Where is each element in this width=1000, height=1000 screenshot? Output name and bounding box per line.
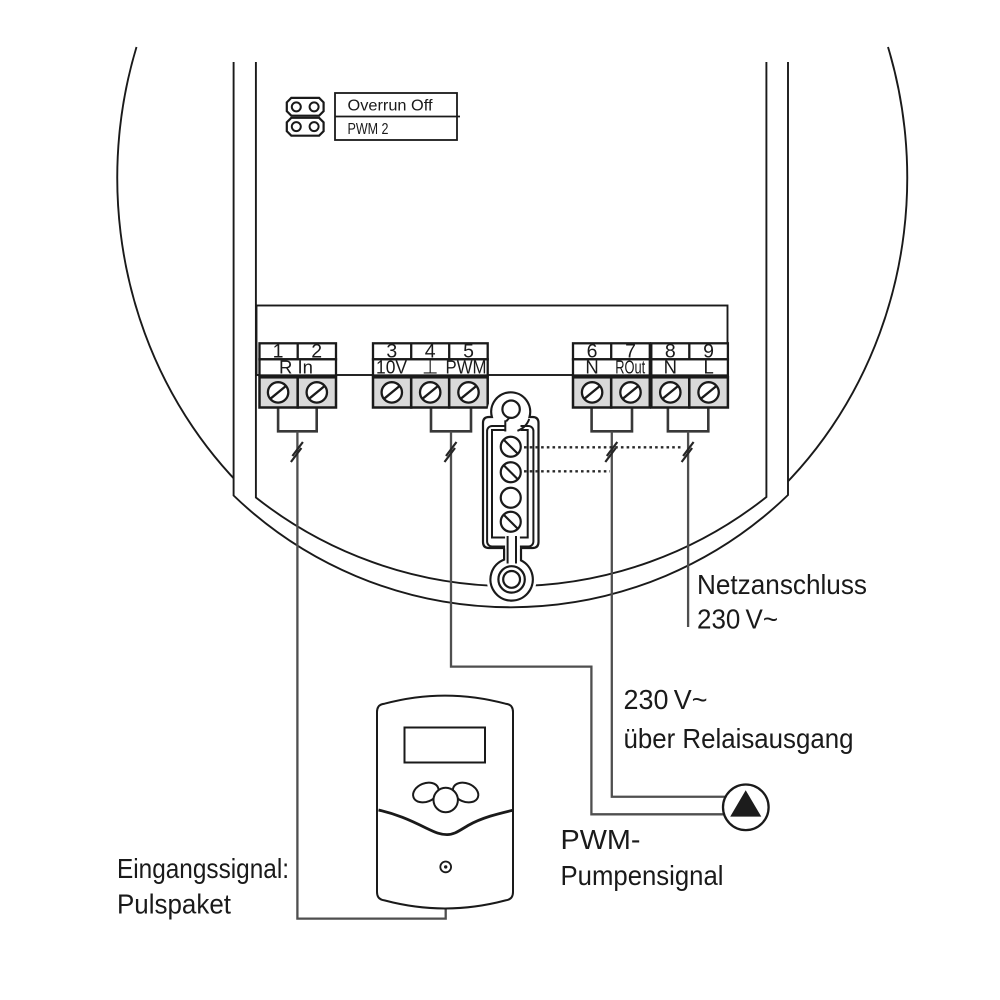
svg-text:Pumpensignal: Pumpensignal	[561, 860, 724, 891]
svg-text:PWM 2: PWM 2	[348, 121, 389, 138]
svg-text:230 V~: 230 V~	[697, 604, 778, 635]
svg-text:N: N	[585, 356, 598, 377]
svg-text:Netzanschluss: Netzanschluss	[697, 569, 867, 600]
svg-text:Overrun Off: Overrun Off	[348, 98, 434, 115]
svg-text:Pulspaket: Pulspaket	[117, 889, 231, 920]
svg-text:über Relaisausgang: über Relaisausgang	[624, 723, 854, 754]
svg-text:PWM-: PWM-	[561, 824, 641, 855]
svg-text:ROut: ROut	[615, 356, 645, 377]
svg-text:⊥: ⊥	[422, 356, 438, 377]
svg-text:N: N	[664, 356, 677, 377]
svg-text:10V: 10V	[376, 356, 408, 377]
svg-text:PWM: PWM	[446, 356, 487, 377]
svg-text:L: L	[703, 356, 713, 377]
svg-text:230 V~: 230 V~	[624, 684, 708, 715]
svg-text:R In: R In	[279, 356, 313, 377]
svg-text:Eingangssignal:: Eingangssignal:	[117, 853, 289, 884]
